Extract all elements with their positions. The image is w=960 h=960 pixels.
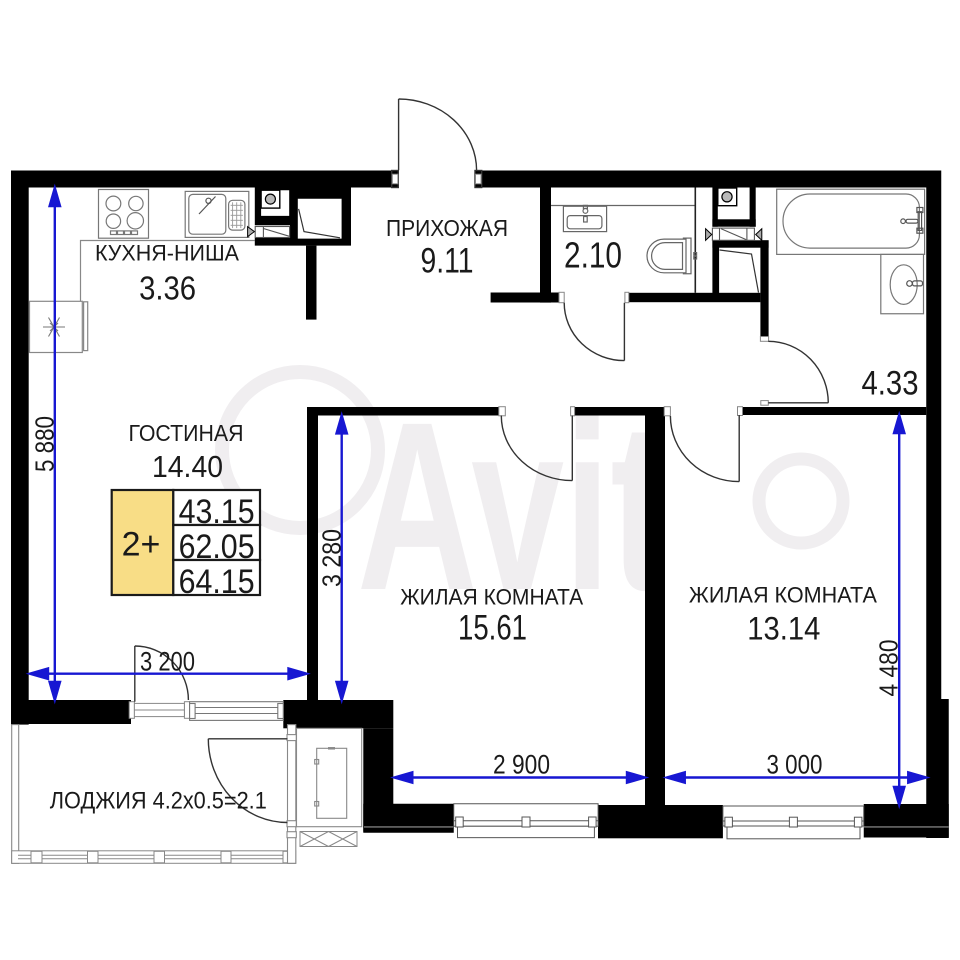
svg-text:13.14: 13.14: [747, 611, 820, 647]
svg-text:2 900: 2 900: [493, 750, 550, 780]
svg-text:14.40: 14.40: [152, 449, 223, 484]
svg-text:3 200: 3 200: [140, 647, 195, 677]
svg-text:64.15: 64.15: [179, 563, 255, 601]
svg-text:2.10: 2.10: [564, 235, 622, 276]
svg-text:4.33: 4.33: [862, 365, 919, 403]
svg-text:9.11: 9.11: [421, 242, 474, 281]
svg-text:3 280: 3 280: [316, 529, 346, 587]
svg-text:2+: 2+: [122, 526, 161, 564]
svg-text:ЖИЛАЯ КОМНАТА: ЖИЛАЯ КОМНАТА: [689, 583, 877, 608]
svg-text:КУХНЯ-НИША: КУХНЯ-НИША: [95, 241, 239, 266]
svg-text:5 880: 5 880: [30, 416, 60, 472]
svg-text:15.61: 15.61: [458, 609, 527, 648]
svg-text:3.36: 3.36: [139, 270, 196, 307]
svg-text:43.15: 43.15: [179, 493, 255, 531]
svg-text:ГОСТИНАЯ: ГОСТИНАЯ: [129, 420, 244, 446]
svg-text:ПРИХОЖАЯ: ПРИХОЖАЯ: [386, 215, 508, 241]
svg-text:ЛОДЖИЯ 4.2х0.5=2.1: ЛОДЖИЯ 4.2х0.5=2.1: [50, 788, 267, 815]
svg-text:ЖИЛАЯ КОМНАТА: ЖИЛАЯ КОМНАТА: [400, 585, 583, 610]
svg-text:3 000: 3 000: [767, 750, 823, 780]
svg-text:4 480: 4 480: [874, 640, 904, 697]
svg-text:62.05: 62.05: [179, 528, 255, 566]
